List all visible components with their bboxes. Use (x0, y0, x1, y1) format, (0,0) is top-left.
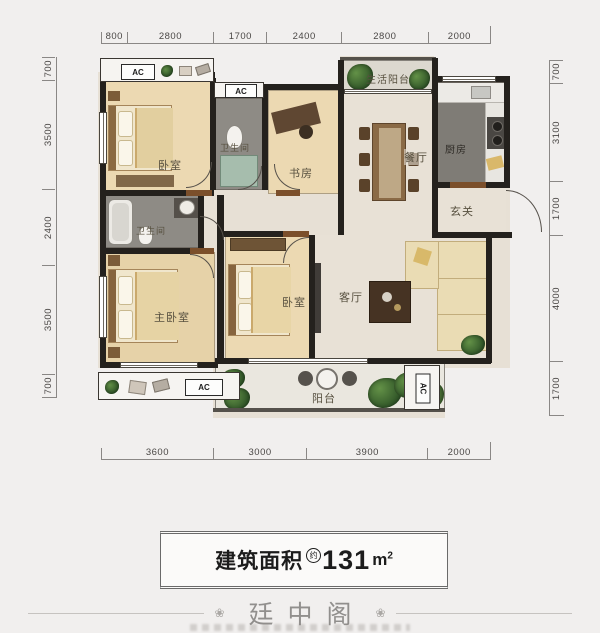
sink (471, 86, 491, 99)
wall (504, 76, 510, 188)
balcony-parapet (340, 57, 436, 60)
window (99, 112, 107, 164)
plant (161, 65, 173, 77)
room-kitchen: 厨房 (436, 82, 506, 186)
divider-line (396, 613, 572, 614)
ac-ledge: AC (98, 372, 240, 400)
stove (487, 117, 505, 149)
background-patch (445, 368, 513, 418)
dimension-segment: 1700 (550, 181, 563, 235)
window (248, 358, 368, 364)
sink (179, 200, 195, 215)
room-label: 玄关 (450, 203, 474, 219)
dimension-value: 3000 (249, 447, 272, 458)
dimension-segment: 800 (101, 32, 127, 43)
room-label: 卧室 (282, 294, 306, 310)
ac-unit-label: AC (121, 64, 155, 80)
floorplan-page: 80028001700240028002000 3600300039002000… (0, 0, 600, 633)
divider-line (28, 613, 204, 614)
storage-box (128, 380, 147, 395)
plant (105, 380, 119, 394)
dimension-segment: 1700 (550, 361, 563, 415)
wall (100, 248, 202, 254)
dimension-segment: 3500 (42, 265, 55, 375)
dimension-chain-right: 7003100170040001700 (549, 60, 564, 416)
dining-chair (408, 179, 419, 192)
bed (108, 269, 178, 343)
dimension-segment: 3900 (306, 448, 427, 459)
floorplan: 卧室 卫生间 书房 生活阳台 (98, 56, 513, 418)
burner (492, 135, 503, 146)
entry-door-arc (506, 190, 542, 232)
dimension-value: 3100 (551, 121, 562, 144)
room-label: 阳台 (312, 390, 336, 406)
wardrobe (230, 238, 286, 251)
wall (432, 232, 512, 238)
dimension-value: 2400 (43, 216, 54, 239)
area-banner: 建筑面积 约 131 m2 (160, 531, 448, 589)
dimension-value: 2000 (448, 31, 471, 42)
dimension-segment: 3600 (101, 448, 213, 459)
dining-chair (359, 127, 370, 140)
dimension-segment: 1700 (213, 32, 266, 43)
dimension-segment: 2800 (127, 32, 214, 43)
door-threshold (186, 190, 212, 196)
dimension-value: 700 (551, 63, 562, 80)
dimension-value: 2800 (159, 31, 182, 42)
door-threshold (276, 190, 300, 196)
ac-unit-label: AC (416, 374, 431, 404)
sofa-cushion-line (438, 314, 486, 315)
dimension-value: 1700 (229, 31, 252, 42)
storage-box (195, 63, 211, 76)
rug (116, 175, 174, 187)
window (99, 276, 107, 338)
room-entry: 玄关 (436, 188, 506, 236)
ornament-icon: ❀ (376, 606, 386, 620)
dimension-segment: 3000 (213, 448, 306, 459)
dimension-segment: 700 (42, 374, 55, 397)
dimension-value: 2000 (448, 447, 471, 458)
dimension-segment: 700 (42, 57, 55, 80)
dimension-segment: 2400 (266, 32, 341, 43)
area-label: 建筑面积 (215, 545, 303, 575)
room-label: 餐厅 (404, 149, 428, 165)
desk (271, 102, 321, 134)
area-unit: m2 (372, 550, 393, 570)
table-decor (394, 304, 401, 311)
wall (432, 58, 438, 236)
dimension-chain-top: 80028001700240028002000 (101, 26, 491, 44)
dimension-segment: 2400 (42, 189, 55, 264)
window (120, 362, 198, 368)
ac-unit-label: AC (185, 379, 223, 396)
dimension-value: 2800 (373, 31, 396, 42)
stool (342, 371, 357, 386)
desk-chair (299, 125, 313, 139)
sofa-cushion-line (438, 278, 486, 279)
door-threshold (450, 182, 486, 188)
dining-chair (359, 153, 370, 166)
dimension-value: 2400 (293, 31, 316, 42)
dimension-chain-left: 700350024003500700 (42, 57, 57, 398)
room-label: 卫生间 (136, 224, 166, 237)
burner (492, 121, 503, 132)
dining-chair (359, 179, 370, 192)
dimension-segment: 700 (550, 60, 563, 83)
blanket (135, 272, 179, 340)
door-threshold (190, 248, 214, 254)
round-table (316, 368, 338, 390)
dimension-value: 3900 (356, 447, 379, 458)
storage-box (152, 378, 170, 393)
tub-inner (112, 203, 129, 241)
room-label: 客厅 (339, 289, 363, 305)
pillow (238, 271, 252, 299)
area-approx-mark: 约 (306, 548, 321, 563)
window (344, 89, 432, 94)
coffee-table (369, 281, 411, 323)
dimension-segment: 3500 (42, 80, 55, 190)
ornament-icon: ❀ (214, 606, 224, 620)
dining-table (372, 123, 406, 201)
dimension-value: 800 (106, 31, 123, 42)
dimension-segment: 2800 (341, 32, 428, 43)
wall (309, 235, 315, 363)
pillow (118, 140, 133, 166)
pillow (118, 310, 133, 339)
background-patch (434, 56, 513, 76)
headboard (229, 265, 236, 335)
table-decor (382, 292, 392, 302)
plant (461, 335, 485, 355)
room-label: 卧室 (158, 157, 182, 173)
dimension-value: 1700 (551, 197, 562, 220)
sofa (437, 241, 487, 351)
dimension-value: 3500 (43, 308, 54, 331)
area-value: 131 (322, 545, 370, 576)
dimension-value: 1700 (551, 377, 562, 400)
nightstand (108, 255, 120, 266)
dimension-segment: 2000 (428, 32, 490, 43)
headboard (109, 270, 116, 342)
pillow (238, 303, 252, 331)
wall (486, 238, 492, 363)
ac-unit-label: AC (225, 84, 257, 98)
room-label: 生活阳台 (343, 71, 433, 86)
ac-ledge: AC (214, 82, 264, 98)
background-patch (213, 56, 340, 84)
table-runner (379, 128, 401, 198)
wall (223, 231, 285, 237)
dimension-value: 3600 (146, 447, 169, 458)
dimension-segment: 2000 (427, 448, 490, 459)
dimension-value: 3500 (43, 123, 54, 146)
ac-ledge: AC (404, 365, 440, 410)
headboard (109, 106, 116, 170)
nightstand (108, 347, 120, 358)
door-threshold (283, 231, 309, 237)
bed (228, 264, 290, 336)
faint-disclaimer-strip (190, 624, 410, 631)
window (442, 76, 496, 82)
room-label: 卫生间 (220, 141, 250, 154)
room-label: 厨房 (445, 141, 467, 156)
nightstand (108, 91, 120, 101)
ac-ledge: AC (100, 58, 214, 82)
wall (262, 84, 268, 190)
stool (298, 371, 313, 386)
room-living: 客厅 (311, 235, 491, 360)
wall (264, 84, 342, 90)
bathtub (108, 199, 133, 245)
room-label: 主卧室 (154, 309, 190, 325)
room-bath-mid: 卫生间 (105, 195, 201, 248)
pillow (118, 276, 133, 305)
pillow (118, 111, 133, 137)
dimension-value: 700 (43, 60, 54, 77)
wall (338, 60, 344, 235)
storage-box (179, 66, 192, 76)
dimension-value: 700 (43, 377, 54, 394)
dining-chair (408, 127, 419, 140)
room-dining: 餐厅 (342, 93, 434, 235)
dimension-value: 4000 (551, 287, 562, 310)
dimension-segment: 3100 (550, 83, 563, 181)
dimension-chain-bottom: 3600300039002000 (101, 442, 491, 460)
dimension-segment: 4000 (550, 235, 563, 361)
wall (217, 195, 224, 363)
